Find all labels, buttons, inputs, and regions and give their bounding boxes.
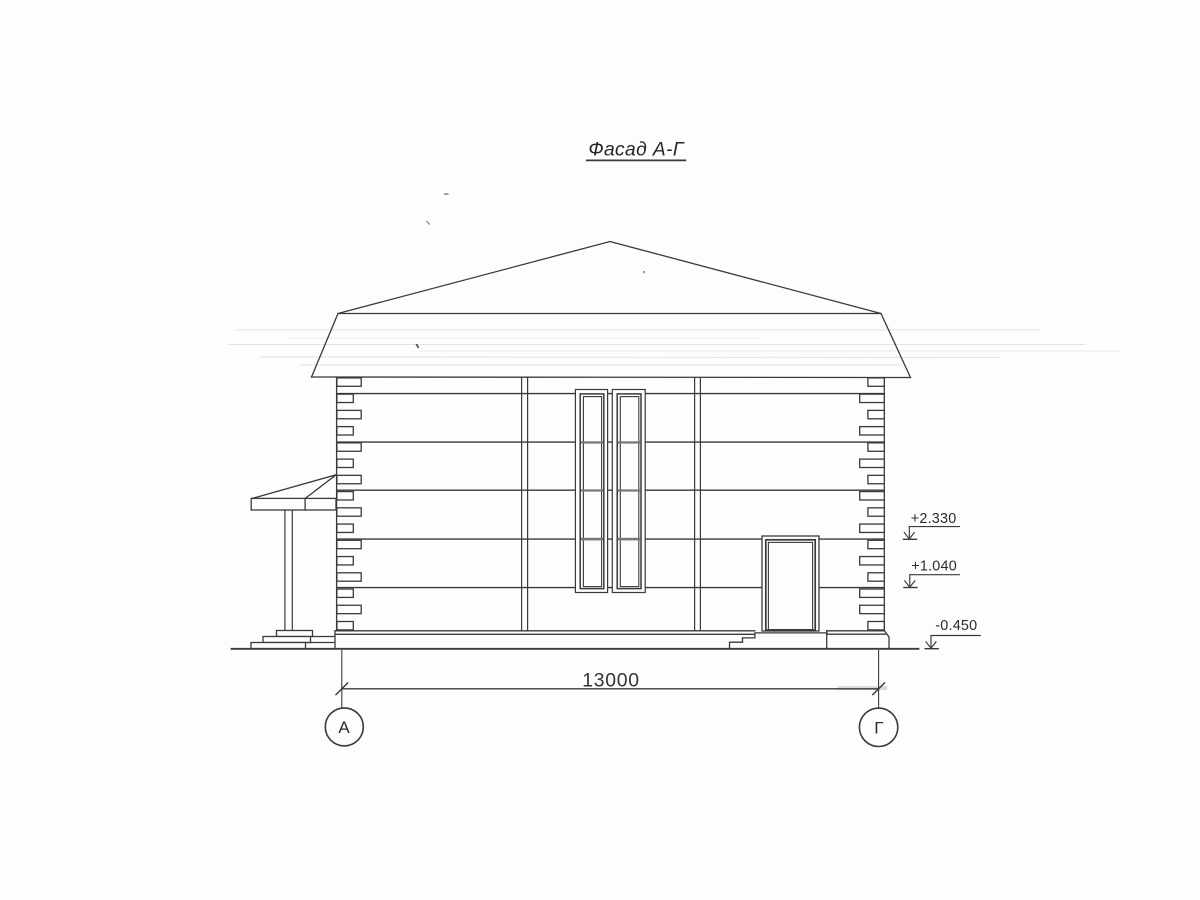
svg-text:Г: Г: [874, 719, 883, 738]
svg-text:Фасад А-Г: Фасад А-Г: [588, 140, 685, 161]
svg-text:13000: 13000: [582, 669, 639, 691]
svg-text:-0.450: -0.450: [935, 618, 977, 634]
svg-text:А: А: [338, 718, 350, 737]
svg-text:+2.330: +2.330: [911, 511, 957, 527]
svg-text:+1.040: +1.040: [911, 558, 957, 574]
